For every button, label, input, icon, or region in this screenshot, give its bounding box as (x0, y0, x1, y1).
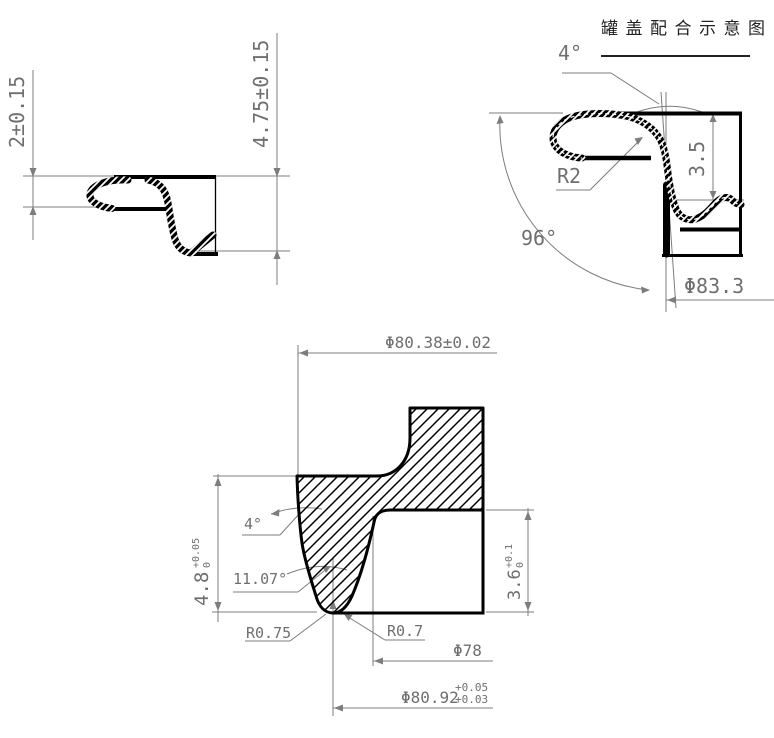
can-seam-engineering-drawing: 2±0.15 4.75±0.15 罐盖配合示意图 4° (0, 0, 774, 738)
dim-height-tol-upper: +0.05 (191, 538, 202, 568)
dim-height-tol-lower: 0 (202, 562, 213, 568)
dim-total-height-label: 4.75±0.15 (249, 40, 273, 148)
radius-curl-label: R2 (557, 164, 581, 188)
dim-step-height-label: 3.6 +0.1 0 (504, 544, 526, 600)
angle-groove-label: 11.07° (233, 570, 287, 588)
dimension-lines: 4° (489, 41, 774, 312)
view-end-profile-section: 2±0.15 4.75±0.15 (5, 33, 290, 285)
drawing-title: 罐盖配合示意图 (601, 19, 773, 39)
tooling-profile-shape (297, 408, 485, 613)
dim-seam-height-label: 3.5 (685, 141, 709, 177)
technical-drawing-canvas: 2±0.15 4.75±0.15 罐盖配合示意图 4° (0, 0, 774, 738)
dim-step-tol-lower: 0 (515, 562, 526, 568)
angle-seam-label: 96° (521, 226, 557, 250)
dim-step-height-value: 3.6 (505, 569, 525, 600)
curl-profile-shape (90, 177, 218, 254)
radius-fillet-label: R0.7 (387, 622, 423, 640)
view-tooling-section: Φ80.38±0.02 4° 11.07° R0.75 R0.7 Φ78 Φ80… (191, 333, 534, 716)
dim-diameter-label: Φ83.3 (684, 274, 744, 298)
dim-height-label: 4.8 +0.05 0 (191, 538, 213, 606)
dim-diameter-tip-label: Φ80.92 +0.05 +0.03 (401, 681, 488, 707)
dim-diameter-top-label: Φ80.38±0.02 (385, 333, 491, 352)
seam-profile-shape (553, 112, 743, 257)
dim-curl-height-label: 2±0.15 (5, 76, 29, 148)
dim-diameter-tip-value: Φ80.92 (401, 688, 459, 707)
angle-wall-label: 4° (244, 515, 262, 533)
dim-diameter-tip-tol-lower: +0.03 (455, 693, 488, 706)
angle-wall-label: 4° (558, 41, 582, 65)
dim-height-value: 4.8 (191, 572, 213, 606)
dim-step-tol-upper: +0.1 (504, 544, 515, 568)
dim-diameter-inner-label: Φ78 (453, 641, 482, 660)
radius-tip-label: R0.75 (246, 624, 291, 642)
view-seam-fit-detail: 罐盖配合示意图 4° 3.5 R2 96° Φ83.3 (489, 19, 774, 312)
